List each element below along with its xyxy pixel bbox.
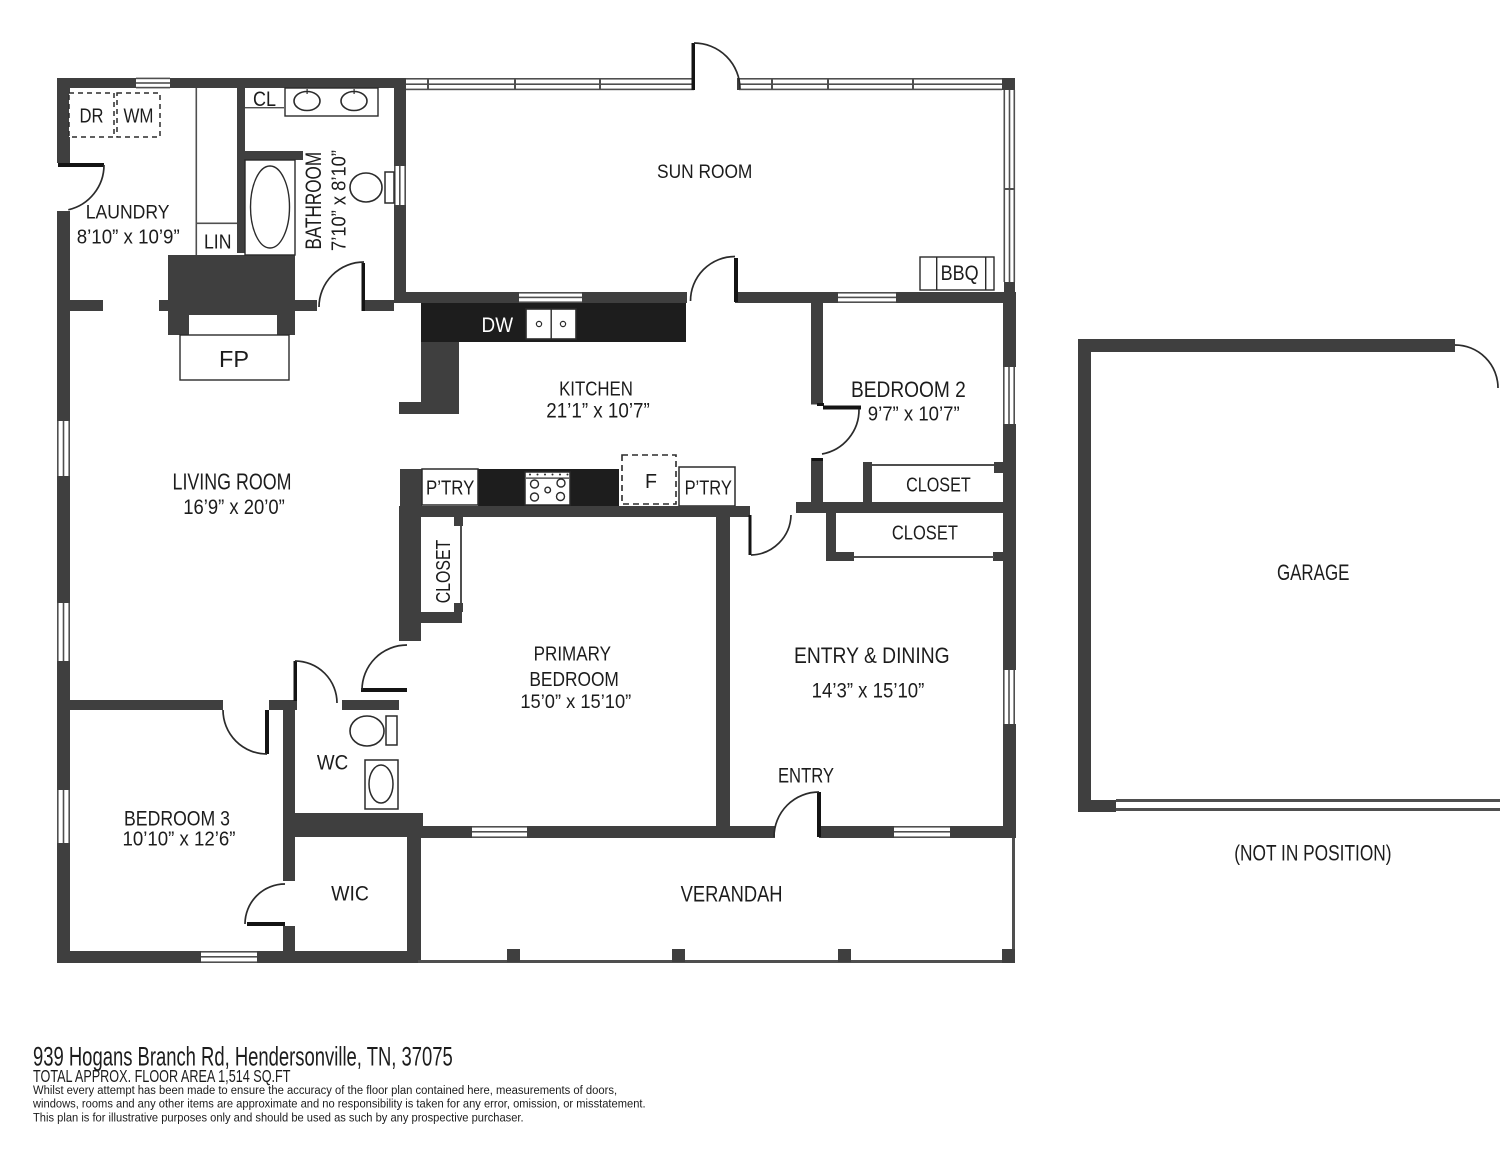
svg-text:WC: WC [317,751,348,774]
svg-text:BATHROOM: BATHROOM [302,152,327,250]
svg-text:CLOSET: CLOSET [892,521,958,544]
svg-text:LIVING ROOM: LIVING ROOM [173,469,292,495]
svg-text:WM: WM [124,104,154,127]
svg-text:PRIMARY: PRIMARY [534,642,611,665]
svg-text:BEDROOM: BEDROOM [529,668,619,690]
svg-text:SUN ROOM: SUN ROOM [657,160,752,182]
svg-text:Whilst every attempt has been: Whilst every attempt has been made to en… [33,1084,617,1097]
svg-text:7’10” x 8’10”: 7’10” x 8’10” [328,150,351,251]
svg-text:CLOSET: CLOSET [432,540,454,603]
svg-text:LAUNDRY: LAUNDRY [86,200,170,222]
svg-text:KITCHEN: KITCHEN [559,377,633,400]
svg-text:14’3” x 15’10”: 14’3” x 15’10” [812,679,925,702]
svg-text:DR: DR [80,104,104,127]
svg-text:CLOSET: CLOSET [906,474,971,496]
svg-text:8’10” x 10’9”: 8’10” x 10’9” [77,226,180,249]
svg-text:21’1” x 10’7”: 21’1” x 10’7” [546,399,649,422]
svg-text:This plan is for illustrative: This plan is for illustrative purposes o… [33,1112,524,1124]
svg-text:WIC: WIC [331,883,369,906]
svg-text:P’TRY: P’TRY [426,476,474,499]
svg-text:BBQ: BBQ [941,262,979,286]
svg-text:DW: DW [482,314,514,337]
svg-text:ENTRY & DINING: ENTRY & DINING [794,644,950,669]
svg-text:GARAGE: GARAGE [1277,561,1350,586]
svg-text:15’0” x 15’10”: 15’0” x 15’10” [520,692,631,714]
svg-text:P’TRY: P’TRY [685,476,732,499]
svg-text:(NOT IN POSITION): (NOT IN POSITION) [1234,842,1391,866]
svg-text:VERANDAH: VERANDAH [681,883,783,907]
svg-text:BEDROOM 3: BEDROOM 3 [124,807,230,831]
svg-text:LIN: LIN [204,230,231,252]
svg-text:10’10” x 12’6”: 10’10” x 12’6” [123,829,236,851]
svg-text:ENTRY: ENTRY [778,765,834,788]
svg-text:16’9” x 20’0”: 16’9” x 20’0” [183,496,284,519]
svg-text:windows, rooms and any other i: windows, rooms and any other items are a… [32,1098,646,1110]
svg-text:9’7” x 10’7”: 9’7” x 10’7” [868,402,960,425]
svg-text:BEDROOM 2: BEDROOM 2 [851,378,966,403]
svg-text:FP: FP [219,346,249,372]
svg-text:F: F [645,471,657,493]
